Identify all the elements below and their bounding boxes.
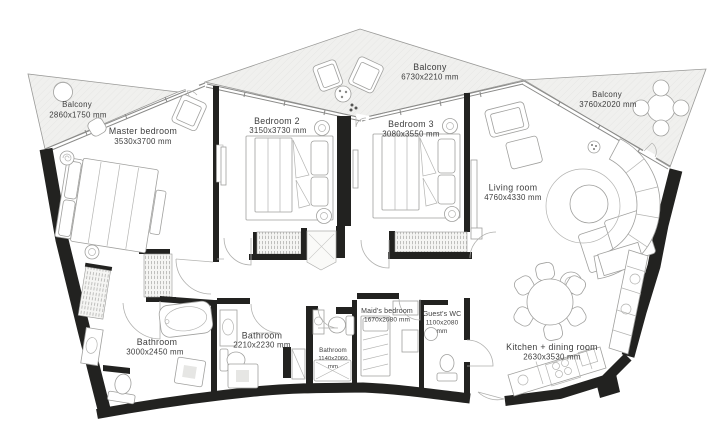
svg-text:1670x2080 mm: 1670x2080 mm <box>364 317 410 324</box>
svg-text:Bedroom 2: Bedroom 2 <box>254 116 300 126</box>
svg-text:1100x2080: 1100x2080 <box>426 320 459 327</box>
svg-text:Balcony: Balcony <box>592 90 622 99</box>
svg-text:3530x3700 mm: 3530x3700 mm <box>114 137 172 146</box>
svg-text:3080x3550 mm: 3080x3550 mm <box>382 130 440 139</box>
svg-text:Balcony: Balcony <box>62 100 92 109</box>
svg-text:3000x2450 mm: 3000x2450 mm <box>126 348 184 357</box>
svg-text:Bathroom: Bathroom <box>137 337 178 347</box>
svg-text:2860x1750 mm: 2860x1750 mm <box>49 111 107 120</box>
svg-text:Bathroom: Bathroom <box>242 331 283 341</box>
svg-text:2210x2230 mm: 2210x2230 mm <box>233 341 291 350</box>
svg-text:Living room: Living room <box>489 183 538 193</box>
svg-text:mm: mm <box>328 364 338 370</box>
svg-text:Bathroom: Bathroom <box>319 347 347 354</box>
svg-text:Balcony: Balcony <box>413 62 447 72</box>
svg-text:3760x2020 mm: 3760x2020 mm <box>579 100 637 109</box>
svg-text:2630x3530 mm: 2630x3530 mm <box>523 353 581 362</box>
svg-text:mm: mm <box>436 328 447 335</box>
svg-text:Maid's bedroom: Maid's bedroom <box>361 308 413 315</box>
svg-text:Kitchen + dining room: Kitchen + dining room <box>506 342 598 352</box>
svg-text:6730x2210 mm: 6730x2210 mm <box>401 73 459 82</box>
svg-text:Bedroom 3: Bedroom 3 <box>388 119 434 129</box>
svg-text:1140x2060: 1140x2060 <box>318 356 348 362</box>
svg-text:3150x3730 mm: 3150x3730 mm <box>249 126 307 135</box>
svg-text:4760x4330 mm: 4760x4330 mm <box>484 193 542 202</box>
svg-text:Guest's WC: Guest's WC <box>423 311 462 318</box>
svg-text:Master bedroom: Master bedroom <box>109 126 177 136</box>
